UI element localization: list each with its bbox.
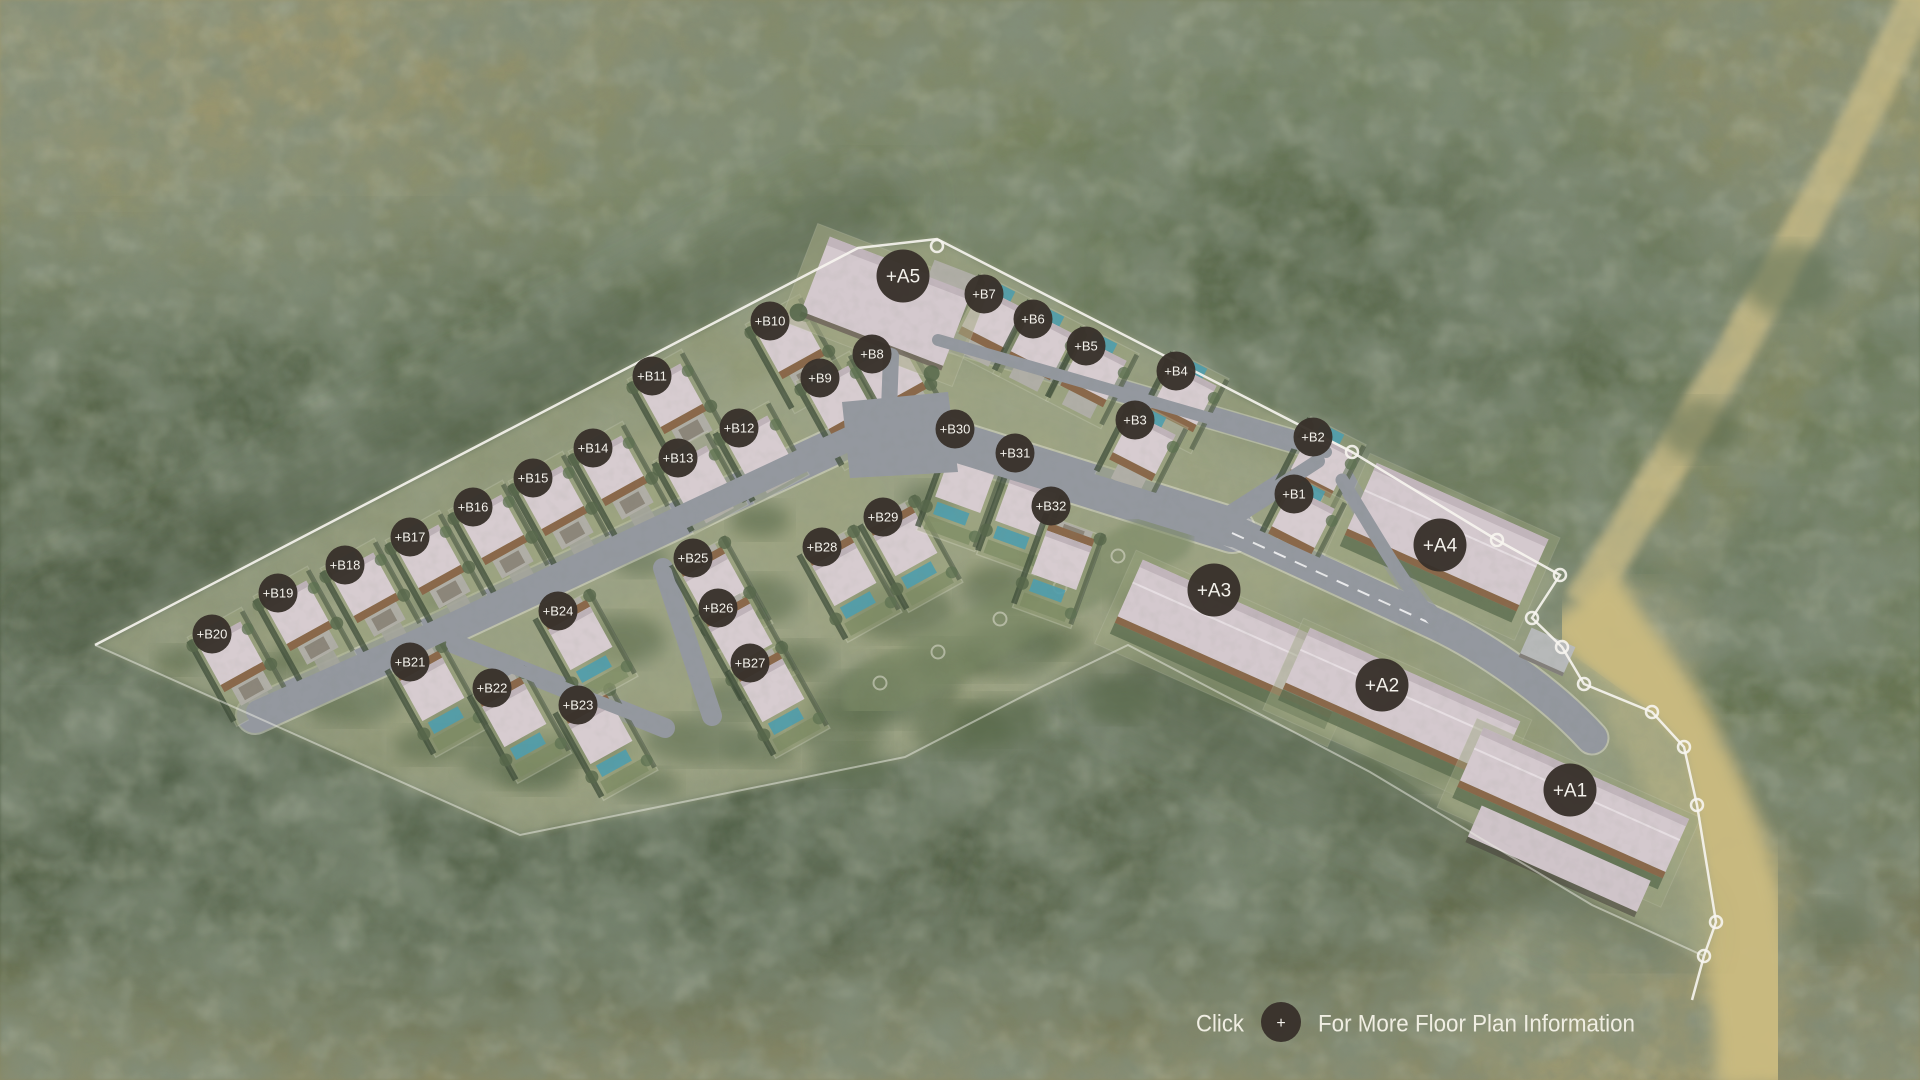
svg-text:+B21: +B21: [395, 655, 426, 670]
svg-text:+B9: +B9: [808, 371, 832, 386]
svg-text:+B17: +B17: [395, 530, 426, 545]
svg-text:+B3: +B3: [1123, 413, 1147, 428]
svg-text:Click: Click: [1196, 1011, 1245, 1038]
svg-text:+A4: +A4: [1423, 536, 1458, 557]
svg-text:+B5: +B5: [1074, 339, 1098, 354]
svg-text:+B30: +B30: [940, 422, 971, 437]
svg-text:+B13: +B13: [663, 451, 694, 466]
svg-text:+B4: +B4: [1164, 364, 1188, 379]
svg-text:+B27: +B27: [735, 656, 766, 671]
svg-text:+B23: +B23: [563, 698, 594, 713]
svg-text:+B1: +B1: [1282, 487, 1306, 502]
svg-text:+B32: +B32: [1036, 499, 1067, 514]
svg-text:+B22: +B22: [477, 681, 508, 696]
svg-text:+A5: +A5: [886, 267, 920, 288]
svg-text:+B26: +B26: [703, 601, 734, 616]
svg-text:+B18: +B18: [330, 558, 361, 573]
svg-text:+B2: +B2: [1301, 430, 1325, 445]
svg-text:+B19: +B19: [263, 586, 294, 601]
svg-text:+: +: [1276, 1015, 1285, 1032]
svg-text:+B10: +B10: [755, 314, 786, 329]
svg-text:+B28: +B28: [807, 540, 838, 555]
svg-text:+B12: +B12: [724, 421, 755, 436]
svg-text:+B7: +B7: [972, 287, 996, 302]
svg-text:+B25: +B25: [678, 551, 709, 566]
svg-text:+B29: +B29: [868, 510, 899, 525]
svg-text:+B24: +B24: [543, 604, 574, 619]
svg-text:+B31: +B31: [1000, 446, 1031, 461]
svg-text:+B16: +B16: [458, 500, 489, 515]
svg-text:+B20: +B20: [197, 627, 228, 642]
svg-text:+B15: +B15: [518, 471, 549, 486]
svg-text:+B11: +B11: [637, 369, 667, 384]
svg-text:For More Floor Plan Informatio: For More Floor Plan Information: [1318, 1011, 1635, 1038]
svg-text:+B8: +B8: [860, 347, 884, 362]
svg-text:+A1: +A1: [1553, 781, 1587, 802]
svg-text:+A2: +A2: [1365, 676, 1399, 697]
svg-text:+B6: +B6: [1021, 312, 1045, 327]
svg-text:+A3: +A3: [1197, 581, 1231, 602]
svg-text:+B14: +B14: [578, 441, 609, 456]
